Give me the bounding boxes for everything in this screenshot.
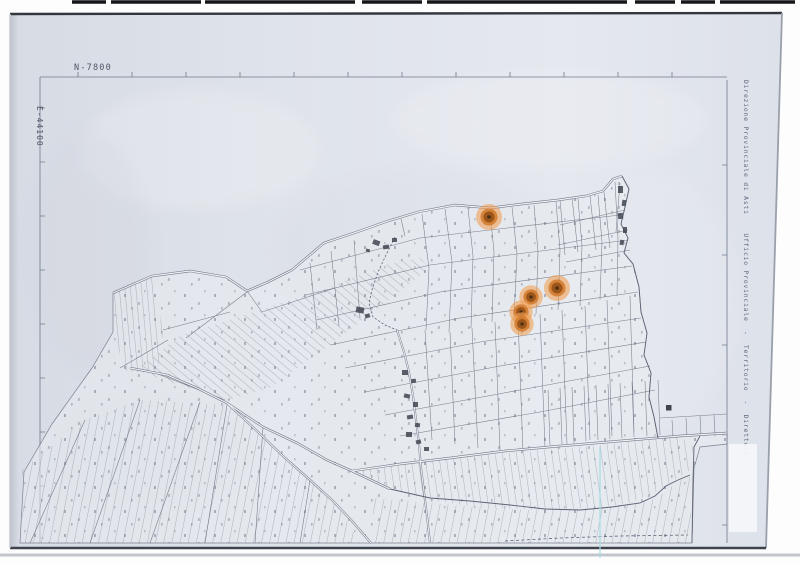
- north-coordinate-label: N-7800: [74, 63, 112, 73]
- highlight-marker: [544, 275, 570, 301]
- scanned-cadastral-map-page: N-7800 E-44100 Direzione Provinciale di …: [0, 0, 800, 565]
- highlight-marker: [476, 204, 502, 230]
- black-square-mark: [666, 405, 672, 411]
- side-annotation-text: Direzione Provinciale di Asti Ufficio Pr…: [742, 80, 750, 456]
- white-correction-patch: [729, 444, 757, 532]
- highlight-marker: [510, 312, 533, 335]
- east-coordinate-label: E-44100: [35, 106, 44, 147]
- cadastral-map-scan: N-7800 E-44100 Direzione Provinciale di …: [0, 0, 800, 565]
